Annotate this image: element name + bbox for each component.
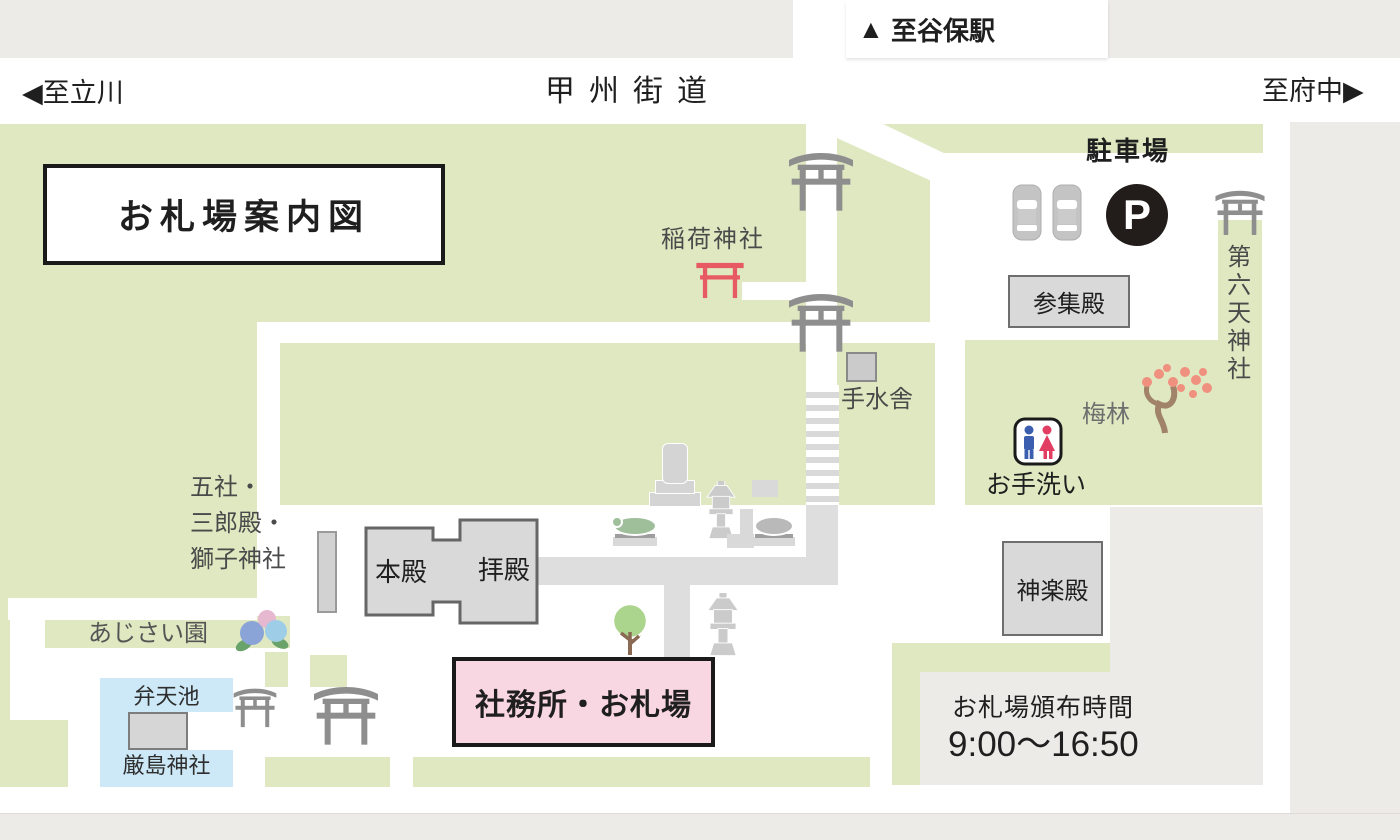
toilet-label: お手洗い — [986, 471, 1086, 500]
torii-icon-main-second — [786, 293, 856, 353]
car-icon-1 — [1012, 184, 1042, 241]
right-side-area — [1290, 122, 1400, 813]
torii-icon-south — [311, 686, 381, 746]
sanshuden-label: 参集殿 — [1033, 284, 1105, 319]
car-icon-2 — [1052, 184, 1082, 241]
ajisai-label: あじさい園 — [88, 620, 208, 648]
green-strip-info-left — [892, 672, 920, 785]
left-arrow-icon: ◀ — [22, 78, 43, 108]
shamusho-ofudaba-box: 社務所・お札場 — [452, 657, 715, 747]
hydrangea-icon — [234, 605, 290, 655]
map-title: お札場案内図 — [118, 189, 370, 240]
hours-value: 9:00〜16:50 — [948, 725, 1139, 765]
small-structure — [752, 480, 778, 497]
itsukushima-building — [128, 712, 188, 750]
green-stub-1 — [265, 652, 288, 687]
tree-icon — [608, 602, 652, 656]
plum-tree-icon — [1133, 358, 1215, 434]
torii-icon-inari-red — [696, 261, 744, 299]
parking-label: 駐車場 — [1086, 137, 1170, 167]
shrine-map: ◀至立川 甲州街道 至府中▶ ▲ 至谷保駅 お札場案内図 駐車場 P 参集殿 神… — [0, 0, 1400, 840]
inari-label: 稲荷神社 — [661, 226, 765, 254]
shamusho-label: 社務所・お札場 — [475, 680, 692, 724]
torii-icon-main-north — [786, 152, 856, 212]
torii-icon-dairokuten — [1212, 190, 1268, 236]
bentenike-label: 弁天池 — [100, 684, 233, 709]
map-title-box: お札場案内図 — [43, 164, 445, 265]
hours-label: お札場頒布時間 — [952, 694, 1134, 723]
temizusha-label: 手水舎 — [841, 386, 913, 414]
path-southwest — [8, 598, 257, 620]
dairokuten-label: 第六天神社 — [1222, 244, 1250, 434]
bottom-road-strip — [0, 813, 1400, 840]
monument-icon — [650, 443, 700, 507]
green-strip-parking-north — [883, 124, 1263, 153]
bairin-label: 梅林 — [1082, 401, 1130, 429]
cow-statue-icon — [611, 514, 659, 548]
gosha-building — [317, 531, 337, 613]
to-yaho-station-label: 至谷保駅 — [891, 11, 995, 48]
sanshuden-building: 参集殿 — [1008, 275, 1130, 328]
parking-p-letter: P — [1123, 191, 1151, 239]
up-arrow-icon: ▲ — [858, 14, 884, 45]
lantern-icon-2 — [705, 593, 741, 656]
stone-path-horizontal — [537, 557, 838, 585]
kaguraden-label: 神楽殿 — [1017, 571, 1089, 606]
temizusha-building — [846, 352, 877, 382]
green-stub-2 — [310, 655, 347, 687]
green-strip-south-2 — [413, 757, 870, 787]
stone-path-to-office — [664, 585, 690, 657]
stone-path-vertical — [806, 505, 838, 557]
green-wedge-southwest — [0, 720, 68, 787]
green-strip-info-top — [892, 643, 1110, 672]
to-yaho-station-block: ▲ 至谷保駅 — [846, 0, 1108, 58]
wall-foot — [727, 534, 754, 548]
right-arrow-icon: ▶ — [1343, 76, 1364, 106]
stairs — [806, 385, 839, 505]
green-strip-south-1 — [265, 757, 390, 787]
koshu-kaido-label: 甲州街道 — [545, 75, 721, 110]
toilet-icon — [1013, 417, 1063, 466]
pond-notch — [188, 712, 233, 750]
lantern-icon-1 — [703, 481, 739, 539]
torii-icon-pond-small — [231, 688, 279, 728]
gosha-label: 五社・三郎殿・獅子神社 — [190, 470, 286, 578]
honden-label: 本殿 — [372, 558, 430, 588]
to-tachikawa-label: ◀至立川 — [22, 78, 124, 109]
itsukushima-label: 厳島神社 — [100, 753, 233, 778]
haiden-label: 拝殿 — [472, 556, 536, 586]
stone-statue-icon — [751, 514, 797, 548]
to-fuchu-label: 至府中▶ — [1262, 76, 1364, 107]
parking-p-icon: P — [1106, 184, 1168, 246]
top-road-strip — [0, 0, 1400, 59]
station-road — [793, 0, 846, 58]
kaguraden-building: 神楽殿 — [1002, 541, 1103, 636]
